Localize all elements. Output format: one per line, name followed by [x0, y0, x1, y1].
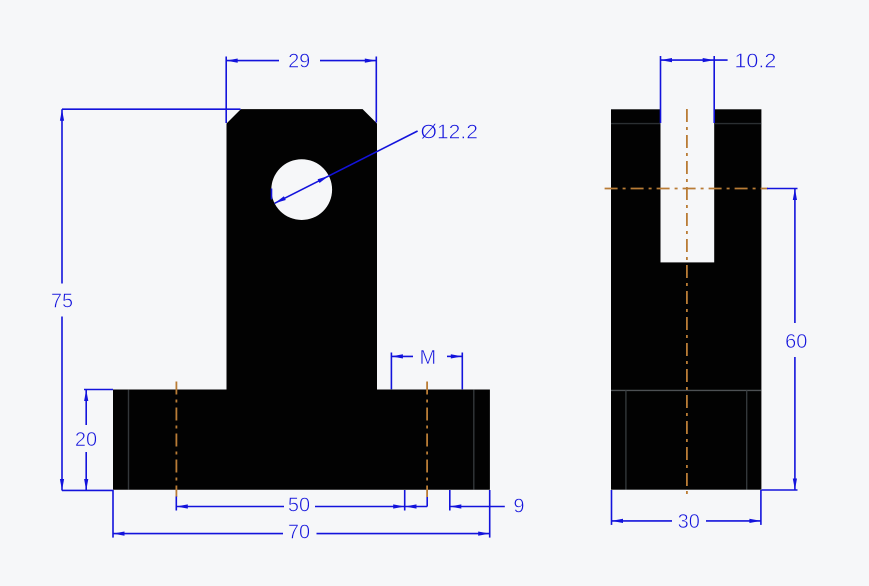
svg-text:29: 29 — [288, 51, 310, 73]
svg-text:30: 30 — [678, 511, 700, 533]
svg-text:75: 75 — [51, 290, 73, 312]
svg-text:M: M — [419, 347, 436, 369]
svg-text:9: 9 — [513, 495, 524, 517]
svg-text:20: 20 — [75, 429, 97, 451]
svg-text:10.2: 10.2 — [734, 50, 776, 72]
svg-text:60: 60 — [785, 331, 807, 353]
svg-text:70: 70 — [288, 522, 310, 544]
svg-text:Ø12.2: Ø12.2 — [421, 121, 479, 143]
svg-text:50: 50 — [288, 495, 310, 517]
